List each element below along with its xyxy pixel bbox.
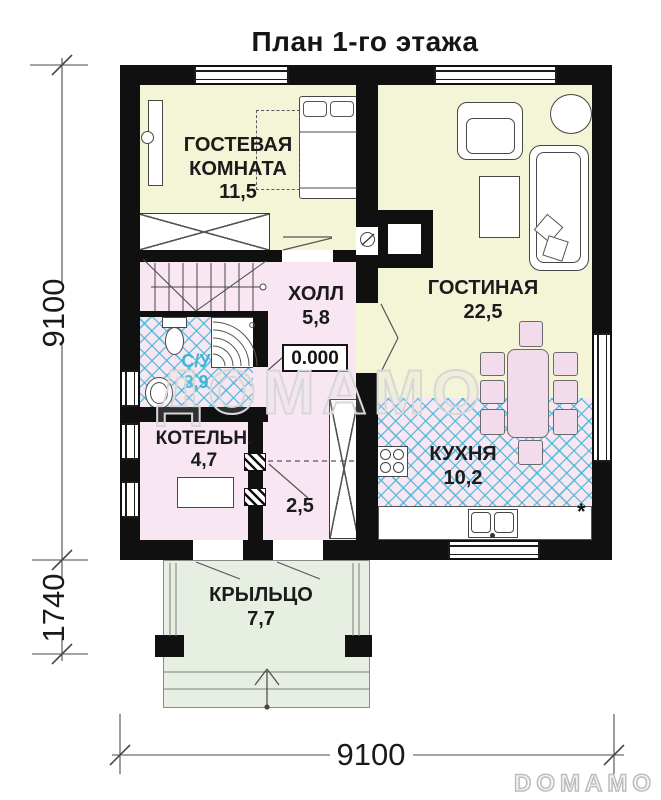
fireplace xyxy=(376,210,433,268)
room-area: 4,7 xyxy=(156,450,253,472)
room-area: 22,5 xyxy=(428,301,538,325)
wall-bathroom-right xyxy=(253,311,268,367)
room-label-bathroom: С/У 3,9 xyxy=(181,351,210,393)
dining-chair xyxy=(553,409,578,435)
flue-damper xyxy=(360,232,375,247)
wardrobe xyxy=(138,213,270,251)
page-title: План 1-го этажа xyxy=(120,26,610,58)
kitchen-note-asterisk: * xyxy=(577,499,586,525)
room-name: ГОСТЕВАЯ КОМНАТА xyxy=(153,134,323,181)
room-label-kitchen: КУХНЯ 10,2 xyxy=(429,443,496,490)
door-opening-boiler-porch xyxy=(193,540,243,560)
room-name: ГОСТИНАЯ xyxy=(428,277,538,301)
stove-burner xyxy=(380,462,391,473)
hall-wardrobe xyxy=(329,399,359,539)
sink-faucet xyxy=(490,533,495,538)
room-label-vestibule: 2,5 xyxy=(286,495,314,519)
kitchen-sink xyxy=(468,509,518,538)
room-area: 11,5 xyxy=(153,181,323,205)
porch-floor xyxy=(163,560,370,708)
room-name: ХОЛЛ xyxy=(288,283,344,307)
armchair-seat xyxy=(466,118,515,154)
sink-bowl xyxy=(494,512,514,533)
window xyxy=(122,481,138,518)
room-area: 7,7 xyxy=(209,608,313,632)
brand-logo: DOMAMO xyxy=(514,770,656,798)
room-label-guest: ГОСТЕВАЯ КОМНАТА 11,5 xyxy=(153,134,323,205)
dining-chair xyxy=(519,321,543,347)
dining-chair xyxy=(480,380,505,404)
elevation-mark: 0.000 xyxy=(282,344,348,372)
sink-bowl xyxy=(471,512,491,533)
room-label-hall: ХОЛЛ 5,8 xyxy=(288,283,344,330)
room-area: 3,9 xyxy=(181,372,210,393)
dimension-width-total: 9100 xyxy=(337,737,406,773)
stove-burner xyxy=(380,449,391,460)
bed-pillow xyxy=(303,101,327,117)
dining-chair xyxy=(480,352,505,376)
window xyxy=(448,542,540,558)
wall-exterior-right xyxy=(592,65,612,560)
door-opening-bathroom xyxy=(253,367,268,407)
dining-chair xyxy=(480,409,505,435)
floor-plan-canvas: План 1-го этажа * xyxy=(0,0,661,800)
fireplace-firebox xyxy=(388,224,421,254)
wall-bathroom-top xyxy=(140,311,268,317)
dining-chair xyxy=(553,380,578,404)
window xyxy=(594,333,610,462)
dining-table xyxy=(507,349,549,438)
window xyxy=(122,423,138,460)
door-opening-guest xyxy=(282,250,333,262)
room-area: 10,2 xyxy=(429,467,496,491)
window xyxy=(434,67,557,83)
door-opening-living xyxy=(356,303,378,373)
room-name: С/У xyxy=(181,351,210,372)
stove-burner xyxy=(393,462,404,473)
wall-guest-living xyxy=(356,85,378,227)
bathroom-sink-bowl xyxy=(150,382,168,404)
stove-burner xyxy=(393,449,404,460)
coffee-table xyxy=(479,176,520,238)
room-name: КУХНЯ xyxy=(429,443,496,467)
window xyxy=(122,370,138,407)
wall-vestibule-kitchen xyxy=(356,373,378,540)
wall-hall-living xyxy=(356,255,378,303)
room-area: 5,8 xyxy=(288,307,344,331)
bed-pillow xyxy=(330,101,354,117)
wall-bathroom-boiler xyxy=(120,407,268,422)
room-label-boiler: КОТЕЛЬН. 4,7 xyxy=(156,428,253,473)
room-label-porch: КРЫЛЬЦО 7,7 xyxy=(209,584,313,631)
porch-column xyxy=(345,635,372,657)
door-opening-entrance xyxy=(273,540,323,560)
boiler-door-threshold xyxy=(244,488,266,506)
room-name: КРЫЛЬЦО xyxy=(209,584,313,608)
dimension-height-total: 9100 xyxy=(36,279,72,348)
boiler-unit xyxy=(177,477,234,508)
stove xyxy=(377,446,408,477)
dining-chair xyxy=(518,440,543,465)
room-label-living: ГОСТИНАЯ 22,5 xyxy=(428,277,538,324)
dining-chair xyxy=(553,352,578,376)
room-name: КОТЕЛЬН. xyxy=(156,428,253,450)
porch-column xyxy=(155,635,184,657)
side-table xyxy=(550,94,592,134)
dimension-porch-depth: 1740 xyxy=(36,574,72,643)
room-area: 2,5 xyxy=(286,495,314,519)
window xyxy=(194,67,289,83)
